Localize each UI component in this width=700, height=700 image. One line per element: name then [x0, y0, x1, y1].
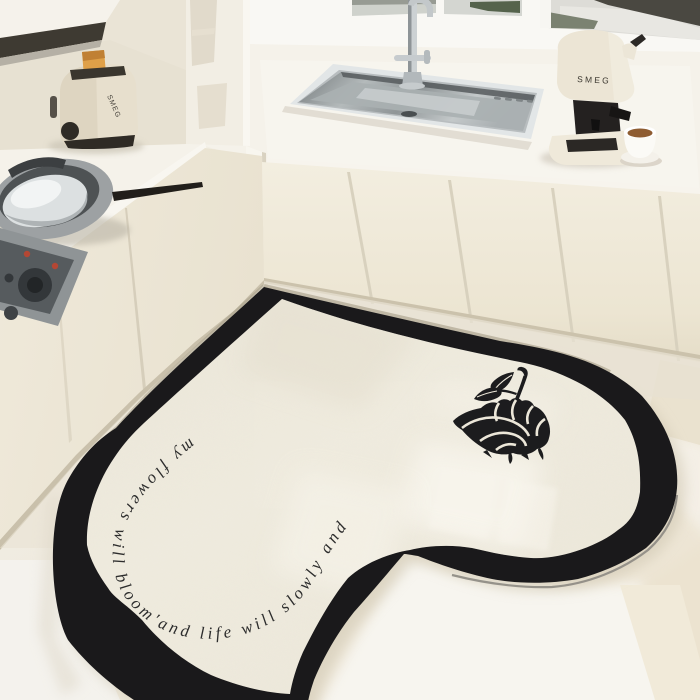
svg-text:SMEG: SMEG — [577, 74, 611, 86]
